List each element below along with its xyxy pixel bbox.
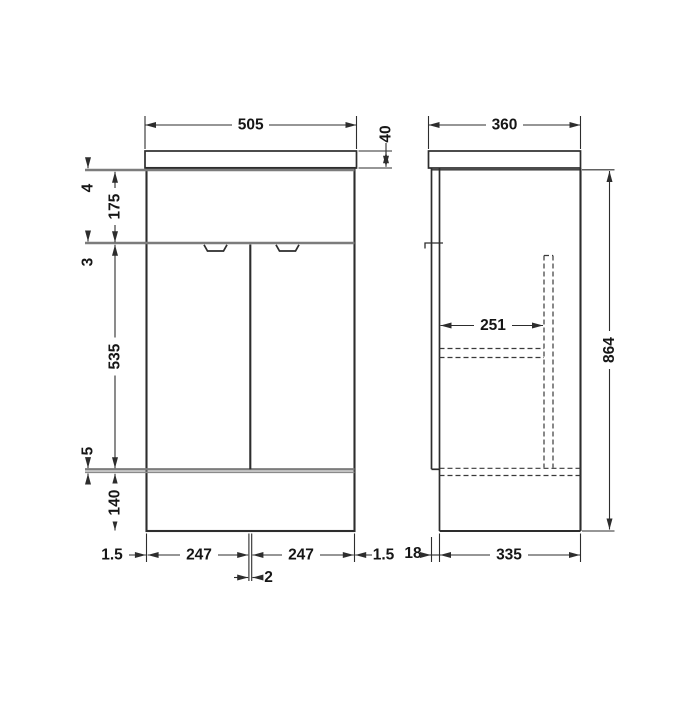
dim-label-3: 3 xyxy=(80,257,97,266)
vanity-technical-drawing: 505 40 4 175 3 xyxy=(0,0,700,700)
side-hidden-details xyxy=(440,256,581,476)
side-countertop xyxy=(429,151,581,168)
dimension-cabinet-height: 864 xyxy=(582,170,618,531)
dimension-front-width: 505 xyxy=(145,116,357,149)
dim-label-1.5-left: 1.5 xyxy=(101,547,123,564)
dimension-counter-thickness: 40 xyxy=(359,125,395,168)
left-door-handle xyxy=(204,245,227,251)
dimension-internal-depth: 251 xyxy=(441,317,544,334)
dim-label-1.5-right: 1.5 xyxy=(373,547,395,564)
front-countertop xyxy=(145,151,357,168)
dimension-bottom-gap: 5 xyxy=(80,446,97,483)
dimension-panel-height: 175 xyxy=(107,172,124,242)
dim-label-175: 175 xyxy=(107,193,124,219)
right-door-handle xyxy=(276,245,299,251)
drawing-svg: 505 40 4 175 3 xyxy=(0,0,700,700)
dimension-mid-rail: 3 xyxy=(80,231,97,267)
dimension-side-bottom-chain: 18 335 xyxy=(404,534,580,564)
front-view: 505 40 4 175 3 xyxy=(80,116,395,586)
dim-label-5: 5 xyxy=(80,446,97,455)
side-view: 360 251 864 18 335 xyxy=(404,116,618,564)
dim-label-335: 335 xyxy=(496,547,522,564)
dim-label-535: 535 xyxy=(107,343,124,369)
dim-label-247-right: 247 xyxy=(288,547,314,564)
dim-label-140: 140 xyxy=(107,490,124,516)
dimension-top-rail: 4 xyxy=(80,160,97,193)
dim-label-247-left: 247 xyxy=(186,547,212,564)
dim-label-4: 4 xyxy=(80,183,97,192)
dimension-plinth-height: 140 xyxy=(107,474,124,531)
dimension-door-height: 535 xyxy=(107,245,124,468)
dim-label-251: 251 xyxy=(480,317,506,334)
dim-label-18: 18 xyxy=(404,545,422,562)
dimension-front-bottom-chain: 1.5 247 247 1.5 2 xyxy=(101,534,394,587)
dim-label-40: 40 xyxy=(378,125,395,142)
dim-label-360: 360 xyxy=(492,117,518,134)
dim-label-505: 505 xyxy=(238,117,264,134)
dim-label-2: 2 xyxy=(264,569,273,586)
dim-label-864: 864 xyxy=(601,337,618,363)
dimension-side-depth: 360 xyxy=(429,116,581,149)
